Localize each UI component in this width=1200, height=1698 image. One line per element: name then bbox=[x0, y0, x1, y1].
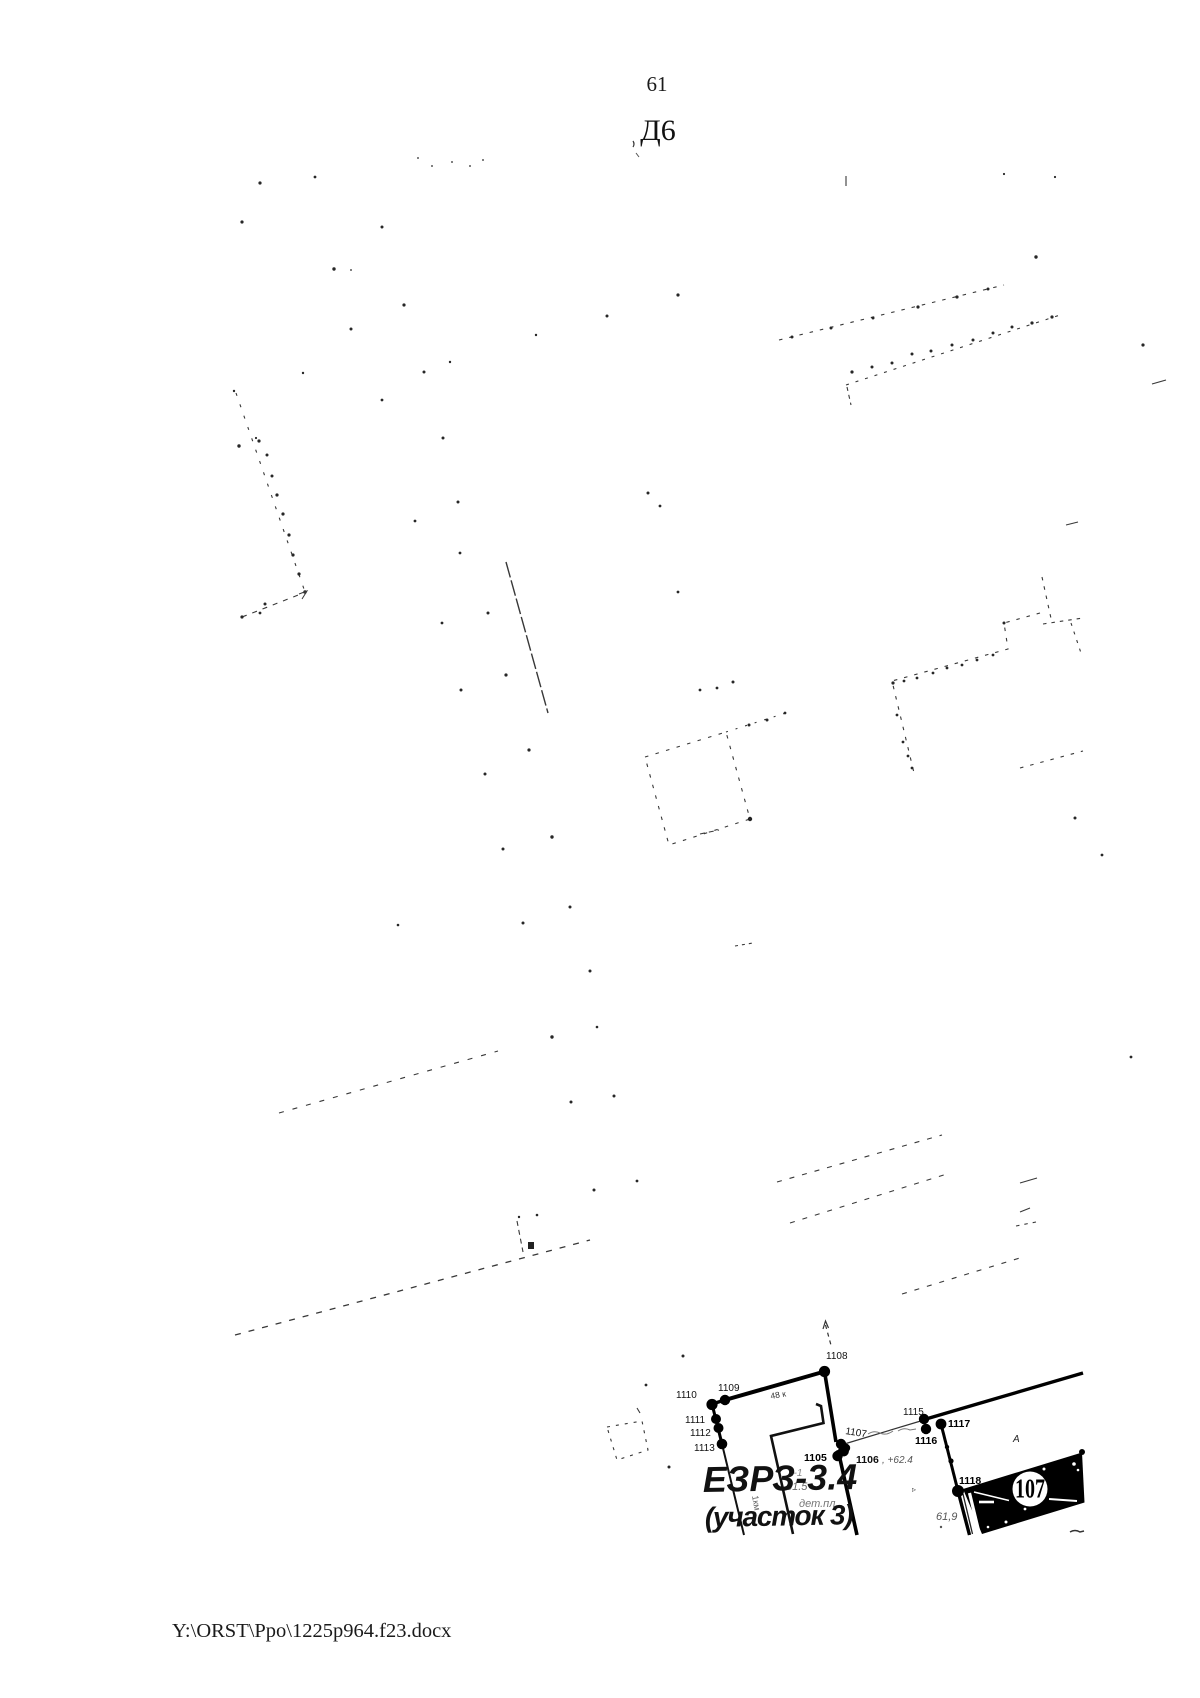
svg-text:ЕЗРЗ-3.4: ЕЗРЗ-3.4 bbox=[702, 1456, 857, 1500]
svg-text:61,9: 61,9 bbox=[936, 1511, 957, 1523]
svg-text:▹: ▹ bbox=[912, 1485, 916, 1494]
svg-text:61: 61 bbox=[647, 72, 668, 96]
svg-text:1110: 1110 bbox=[676, 1390, 697, 1401]
svg-text:1109: 1109 bbox=[718, 1383, 740, 1394]
svg-text:Y:\ORST\Ppo\1225p964.f23.docx: Y:\ORST\Ppo\1225p964.f23.docx bbox=[172, 1620, 451, 1642]
svg-text:1108: 1108 bbox=[826, 1351, 848, 1362]
svg-text:107: 107 bbox=[1015, 1474, 1045, 1504]
svg-text:1111: 1111 bbox=[685, 1415, 705, 1426]
svg-text:1112: 1112 bbox=[690, 1428, 711, 1439]
svg-text:А: А bbox=[1012, 1434, 1020, 1445]
svg-text:1115: 1115 bbox=[903, 1407, 924, 1418]
svg-text:1117: 1117 bbox=[948, 1418, 970, 1430]
svg-text:1113: 1113 bbox=[694, 1443, 715, 1454]
svg-text:, +62.4: , +62.4 bbox=[882, 1455, 913, 1466]
svg-text:1116: 1116 bbox=[915, 1435, 937, 1447]
svg-text:Д6: Д6 bbox=[640, 114, 675, 147]
svg-text:1118: 1118 bbox=[959, 1475, 981, 1487]
svg-text:1106: 1106 bbox=[856, 1454, 879, 1466]
svg-text:(участок 3): (участок 3) bbox=[705, 1499, 854, 1533]
